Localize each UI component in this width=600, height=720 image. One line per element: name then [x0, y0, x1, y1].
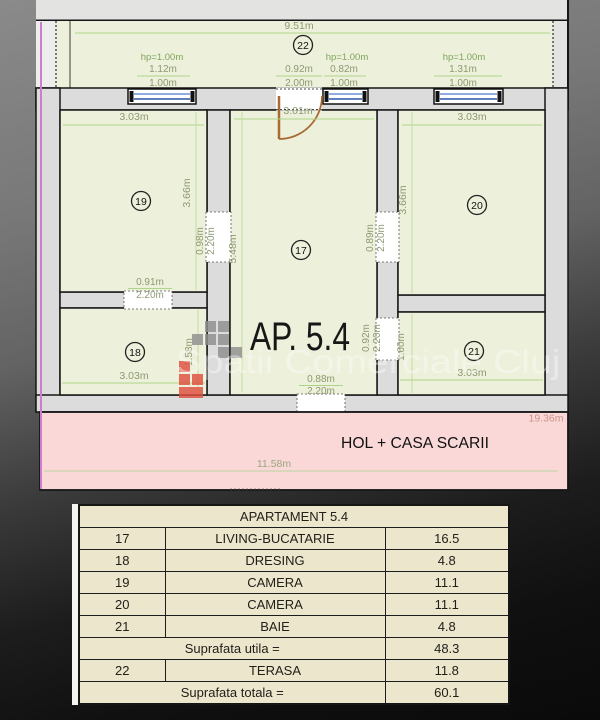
hp-label-mid: hp=1.00m [326, 52, 369, 63]
window-mid [323, 89, 368, 104]
row-area: 11.1 [385, 572, 509, 594]
table-row: 17 LIVING-BUCATARIE 16.5 [79, 528, 509, 550]
table-total-row: Suprafata totala = 60.1 [79, 682, 509, 705]
win-left-width: 1.12m [149, 64, 177, 75]
room-20-width: 3.03m [457, 111, 486, 123]
room-17-height: 5.48m [227, 234, 239, 263]
row-name: DRESING [165, 550, 385, 572]
room-22-number: 22 [297, 40, 309, 52]
total-label: Suprafata totala = [79, 682, 385, 705]
row-id: 18 [79, 550, 165, 572]
door-right-height: 2.20m [376, 224, 387, 252]
room-19-width: 3.03m [119, 111, 148, 123]
table-title-row: APARTAMENT 5.4 [79, 505, 509, 528]
win-mid-width: 0.82m [330, 64, 358, 75]
hall-total-dim: 19.36m [528, 413, 563, 425]
table-title: APARTAMENT 5.4 [79, 505, 509, 528]
win-right-width: 1.31m [449, 64, 477, 75]
hp-label-left: hp=1.00m [141, 52, 184, 63]
room-19-pass-height: 2.20m [136, 290, 164, 301]
hall: 19.36m 11.58m HOL + CASA SCARII [40, 412, 568, 490]
row-id: 21 [79, 616, 165, 638]
row-area: 11.8 [385, 660, 509, 682]
room-17-number: 17 [295, 245, 307, 257]
room-19-height: 3.66m [181, 178, 193, 207]
room-18-width: 3.03m [119, 370, 148, 382]
row-id: 20 [79, 594, 165, 616]
useful-value: 48.3 [385, 638, 509, 660]
row-id: 19 [79, 572, 165, 594]
window-right [434, 89, 503, 104]
floor-plan: 9.51m 22 hp=1.00m hp=1.00m hp=1.00m 1.12… [0, 0, 600, 500]
total-value: 60.1 [385, 682, 509, 705]
terrace-total-dim: 9.51m [284, 20, 313, 32]
table-row: 19 CAMERA 11.1 [79, 572, 509, 594]
row-area: 16.5 [385, 528, 509, 550]
row-area: 4.8 [385, 616, 509, 638]
table-useful-row: Suprafata utila = 48.3 [79, 638, 509, 660]
top-slab [36, 0, 568, 21]
row-id: 17 [79, 528, 165, 550]
door-left-width: 0.98m [195, 227, 206, 255]
room-18-number: 18 [129, 347, 141, 359]
row-name: BAIE [165, 616, 385, 638]
table-row: 21 BAIE 4.8 [79, 616, 509, 638]
row-area: 4.8 [385, 550, 509, 572]
door-right-width: 0.89m [365, 224, 376, 252]
table-row: 18 DRESING 4.8 [79, 550, 509, 572]
screenshot-root: 9.51m 22 hp=1.00m hp=1.00m hp=1.00m 1.12… [0, 0, 600, 720]
table-row: 22 TERASA 11.8 [79, 660, 509, 682]
terrace-door-width: 0.92m [285, 64, 313, 75]
table-row: 20 CAMERA 11.1 [79, 594, 509, 616]
area-table: APARTAMENT 5.4 17 LIVING-BUCATARIE 16.5 … [78, 504, 510, 705]
entry-height: 2.20m [307, 386, 335, 397]
row-name: TERASA [165, 660, 385, 682]
room-19-number: 19 [135, 196, 147, 208]
watermark-text: Spatii Comerciale Cluj [176, 343, 561, 380]
room-19-pass-width: 0.91m [136, 277, 164, 288]
row-id: 22 [79, 660, 165, 682]
room-17-width: 3.01m [283, 105, 312, 117]
row-name: CAMERA [165, 594, 385, 616]
hall-width-dim: 11.58m [257, 458, 291, 470]
hall-label: HOL + CASA SCARII [341, 435, 489, 452]
row-name: LIVING-BUCATARIE [165, 528, 385, 550]
room-20-number: 20 [471, 200, 483, 212]
area-table-wrap: APARTAMENT 5.4 17 LIVING-BUCATARIE 16.5 … [72, 504, 510, 705]
row-name: CAMERA [165, 572, 385, 594]
hp-label-right: hp=1.00m [443, 52, 486, 63]
row-area: 11.1 [385, 594, 509, 616]
useful-label: Suprafata utila = [79, 638, 385, 660]
room-20-height: 3.66m [397, 185, 409, 214]
window-left [128, 89, 196, 104]
door-left-height: 2.20m [206, 227, 217, 255]
